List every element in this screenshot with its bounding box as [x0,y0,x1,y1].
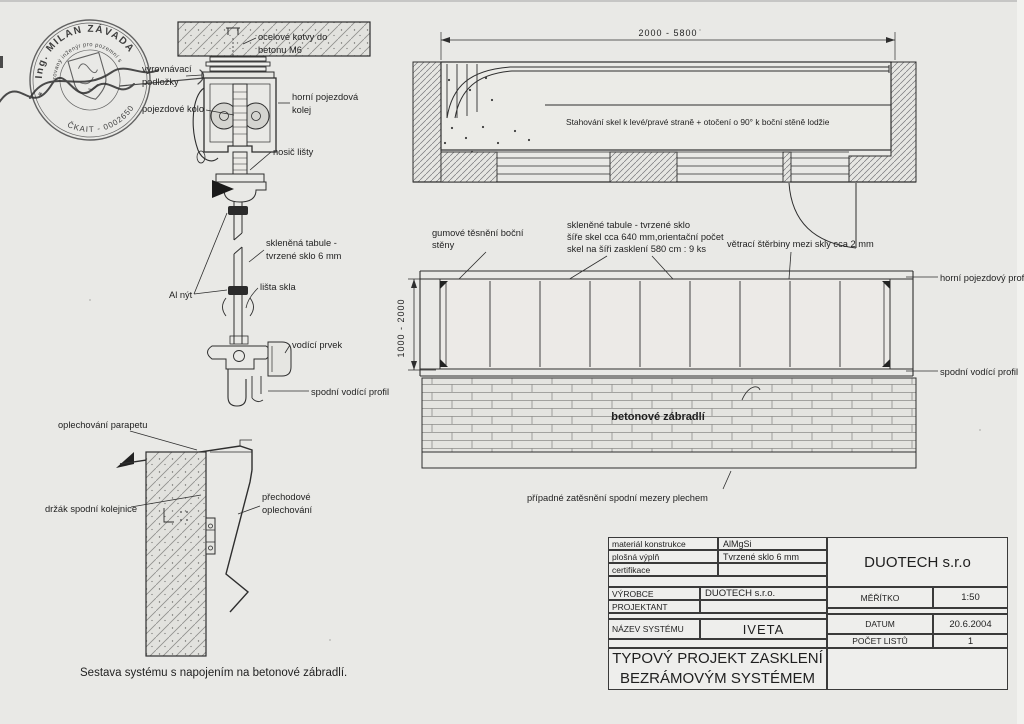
spec-value-material: AlMgSi [718,537,827,550]
system-label: NÁZEV SYSTÉMU [608,619,700,639]
label-glass-line1: skleněná tabule - [266,238,337,248]
label-vent-note: větrací štěrbiny mezi skly cca 2 mm [727,239,874,249]
spec-empty-row [608,576,827,587]
plan-pier [441,152,497,182]
elevation-dimension: 1000 - 2000 [396,298,406,357]
plan-left-wall [413,62,441,182]
flashing-arrow [116,452,134,468]
label-glass-line2: tvrzené sklo 6 mm [266,251,342,261]
label-brick-wall: betonové zábradlí [611,411,705,423]
scale-label: MĚŘÍTKO [827,587,933,608]
company-name: DUOTECH s.r.o [827,537,1008,587]
sheets-label: POČET LISTŮ [827,634,933,648]
spec-value-cert [718,563,827,576]
label-parapet-flashing: oplechování parapetu [58,420,147,430]
plinth-band [422,452,916,468]
label-gasket-line2: stěny [432,240,455,250]
spec-label-cert: certifikace [608,563,718,576]
elevation-lines [408,252,938,489]
plan-note: Stahování skel k levé/pravé straně + oto… [566,117,830,127]
label-rivet: Al nýt [169,290,193,300]
section-caption: Sestava systému s napojením na betonové … [80,667,347,679]
plan-dimension: 2000 - 5800 [638,28,697,38]
spec-value-infill: Tvrzené sklo 6 mm [718,550,827,563]
concrete-pillar [146,452,206,656]
drawing-title-line1: TYPOVÝ PROJEKT ZASKLENÍ [612,649,823,669]
stamp-lion [76,60,103,92]
drawing-title: TYPOVÝ PROJEKT ZASKLENÍ BEZRÁMOVÝM SYSTÉ… [608,648,827,690]
label-bottom-profile: spodní vodící profil [940,367,1018,377]
label-glassnote-line1: skleněné tabule - tvrzené sklo [567,220,690,230]
label-gasket-line1: gumové těsnění boční [432,228,524,238]
glass-field [440,279,890,369]
label-glass-strip: lišta skla [260,282,296,292]
label-glassnote-line2: šíře skel cca 640 mm,orientační počet [567,232,724,242]
stamp-shield [68,53,111,104]
label-bottom-note: případné zatěsnění spodní mezery plechem [527,493,708,503]
designer-label: PROJEKTANT [608,600,700,613]
designer-value [700,600,827,613]
label-guide-element: vodící prvek [292,340,342,350]
label-anchor-line2: betonu M6 [258,45,302,55]
bottom-guide-profile [228,369,246,406]
title-block: materiál konstrukce AlMgSi plošná výplň … [608,537,1008,690]
label-carrier: nosič lišty [273,147,314,157]
label-top-rail-line2: kolej [292,105,311,115]
drawing-title-line2: BEZRÁMOVÝM SYSTÉMEM [620,669,815,689]
system-value: IVETA [700,619,827,639]
triangle-marker [212,180,234,198]
label-transition-line2: oplechování [262,505,313,515]
elevation-bottom-rail [420,369,913,376]
sheets-value: 1 [933,634,1008,648]
drawing-sheet: ocelové kotvy do betonu M6 vyrovnávací p… [0,0,1024,724]
producer-value: DUOTECH s.r.o. [700,587,827,600]
label-rail-bracket: držák spodní kolejnice [45,504,137,514]
scale-value: 1:50 [933,587,1008,608]
plan-floor [441,62,891,150]
plan-pier [610,152,677,182]
bottom-shoe-profile [208,346,271,369]
plan-pier [783,152,791,182]
date-value: 20.6.2004 [933,614,1008,634]
spec-label-infill: plošná výplň [608,550,718,563]
spacer-row [608,639,827,648]
spec-label-material: materiál konstrukce [608,537,718,550]
label-anchor-line1: ocelové kotvy do [258,32,327,42]
label-transition-line1: přechodové [262,492,311,502]
producer-label: VÝROBCE [608,587,700,600]
transition-flashing-line [226,470,252,612]
empty-cell [827,648,1008,690]
label-glassnote-line3: skel na šíři zasklení 580 cm : 9 ks [567,244,706,254]
al-rivet-top [228,206,248,215]
rail-bracket [206,518,215,554]
plan-view [413,32,916,248]
guide-element [268,342,291,376]
authorization-stamp: * Ing. MILAN ZÁVADA autorizovaný inženýr… [0,0,222,168]
label-top-profile: horní pojezdový profil [940,273,1024,283]
label-top-rail-line1: horní pojezdová [292,92,359,102]
label-bottom-guide: spodní vodící profil [311,387,389,397]
al-rivet-bottom [228,286,248,295]
date-label: DATUM [827,614,933,634]
